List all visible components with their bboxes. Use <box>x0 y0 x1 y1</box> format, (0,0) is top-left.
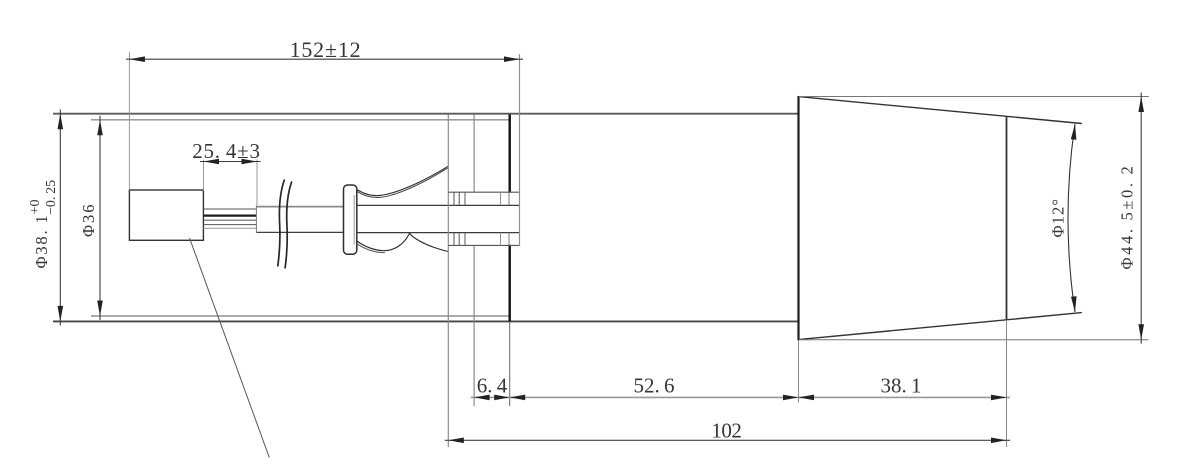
svg-text:52. 6: 52. 6 <box>634 374 675 398</box>
svg-text:Φ44. 5±0. 2: Φ44. 5±0. 2 <box>1118 164 1137 270</box>
svg-text:Φ12°: Φ12° <box>1048 198 1067 238</box>
svg-text:25. 4±3: 25. 4±3 <box>192 139 261 163</box>
svg-text:6. 4: 6. 4 <box>477 374 508 398</box>
svg-text:Φ36: Φ36 <box>79 202 98 237</box>
svg-text:38. 1: 38. 1 <box>881 374 922 398</box>
svg-text:102: 102 <box>711 419 741 443</box>
svg-text:152±12: 152±12 <box>290 37 362 62</box>
